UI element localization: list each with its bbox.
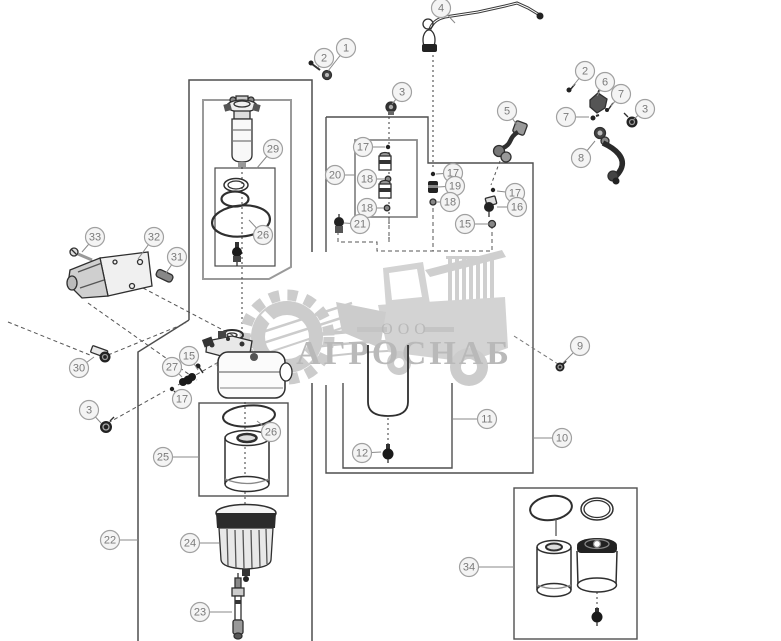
callout-number-6: 6 [602, 77, 608, 89]
callout-number-34: 34 [463, 562, 475, 574]
service-kit-parts [529, 493, 617, 626]
callout-number-10: 10 [556, 433, 568, 445]
callout-number-33: 33 [89, 232, 101, 244]
callout-number-2: 2 [321, 53, 327, 65]
callout-number-7: 7 [563, 112, 569, 124]
watermark-name: АГРОСНАБ [296, 335, 512, 372]
callout-number-30: 30 [73, 363, 85, 375]
callout-number-24: 24 [184, 538, 196, 550]
hand-primer-pump [223, 96, 260, 167]
box-group-10 [326, 117, 533, 473]
parts-diagram: ООО АГРОСНАБ [0, 0, 781, 641]
hose-5 [494, 120, 528, 162]
elbow-fitting-21 [334, 214, 344, 233]
dash-bolt-9 [514, 336, 558, 364]
callout-number-17: 17 [176, 394, 188, 406]
callout-number-3: 3 [642, 104, 648, 116]
callout-number-15: 15 [459, 219, 471, 231]
callout-number-19: 19 [449, 181, 461, 193]
callout-number-22: 22 [104, 535, 116, 547]
callout-number-27: 27 [166, 362, 178, 374]
callout-number-29: 29 [267, 144, 279, 156]
callout-number-16: 16 [511, 202, 523, 214]
callout-number-9: 9 [577, 341, 583, 353]
seal-kit-parts [211, 179, 271, 267]
dash-hose-to-injector [491, 161, 500, 185]
check-valve-kit-20 [379, 145, 391, 211]
element-kit-parts [222, 404, 275, 492]
callout-number-3: 3 [399, 87, 405, 99]
sediment-bowl-24 [216, 505, 276, 583]
hose-8 [595, 128, 623, 185]
callout-number-23: 23 [194, 607, 206, 619]
callout-number-12: 12 [356, 448, 368, 460]
callout-number-2: 2 [582, 66, 588, 78]
fitting-3-center [386, 102, 396, 115]
callout-number-25: 25 [157, 452, 169, 464]
parts-diagram-page: ООО АГРОСНАБ [0, 0, 781, 641]
bolt-30 [90, 346, 110, 363]
callout-number-4: 4 [438, 3, 444, 15]
callout-number-18: 18 [361, 174, 373, 186]
fitting-column-19 [428, 172, 438, 205]
callout-number-32: 32 [148, 232, 160, 244]
callout-number-15: 15 [183, 351, 195, 363]
nut-3-left [100, 417, 114, 433]
injector-16 [484, 188, 497, 228]
callout-number-26: 26 [265, 427, 277, 439]
callout-number-17: 17 [357, 142, 369, 154]
callout-number-18: 18 [361, 203, 373, 215]
callout-number-3: 3 [86, 405, 92, 417]
callout-number-1: 1 [343, 43, 349, 55]
callout-number-5: 5 [504, 106, 510, 118]
callout-number-7: 7 [618, 89, 624, 101]
wif-sensor-23 [232, 573, 244, 639]
callout-number-8: 8 [578, 153, 584, 165]
callout-number-26: 26 [257, 230, 269, 242]
callout-number-18: 18 [444, 197, 456, 209]
mounting-bracket-32 [67, 248, 174, 298]
box-service-kit-34 [514, 488, 637, 639]
callout-number-11: 11 [481, 414, 492, 426]
callout-number-20: 20 [329, 170, 341, 182]
callout-number-31: 31 [171, 252, 183, 264]
bolt-9 [556, 361, 567, 372]
callout-number-21: 21 [354, 219, 366, 231]
